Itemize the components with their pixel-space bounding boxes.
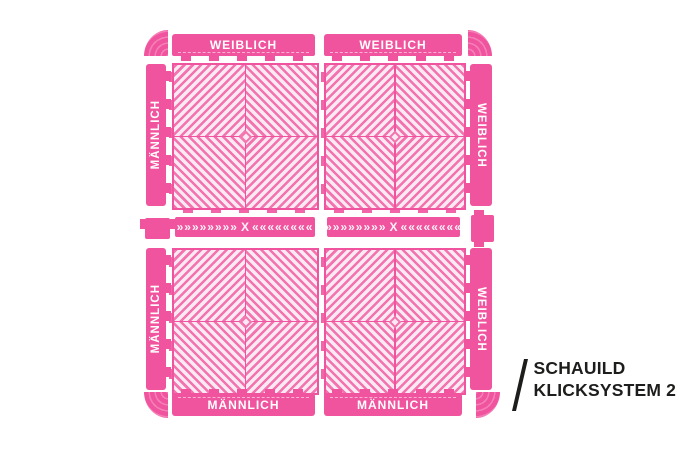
connector-tabs — [474, 210, 490, 215]
connector-tabs — [334, 208, 455, 213]
corner-piece-bottom-left — [144, 392, 168, 418]
transition-strip-right: »»»»»»»» X «««««««« — [327, 217, 460, 237]
floor-tile-3 — [172, 248, 319, 395]
brand-slash-icon — [512, 359, 528, 411]
edge-strip-label: MÄNNLICH — [208, 398, 280, 412]
tile-quadrant — [174, 250, 245, 321]
brand-line2: KLICKSYSTEM 2 — [534, 379, 677, 401]
tile-quadrant — [326, 65, 394, 136]
floor-tile-2 — [324, 63, 466, 210]
tile-quadrant — [246, 137, 317, 208]
connector-tabs — [474, 242, 490, 247]
tile-quadrant — [246, 250, 317, 321]
edge-strip-right-bottom: WEIBLICH — [470, 248, 492, 390]
edge-strip-label: WEIBLICH — [475, 287, 487, 352]
corner-piece-top-left — [144, 30, 168, 56]
tile-quadrant — [326, 250, 394, 321]
connector-tabs — [169, 72, 174, 201]
floor-tile-4 — [324, 248, 466, 395]
edge-strip-top-left: WEIBLICH — [172, 34, 315, 56]
edge-strip-bottom-left: MÄNNLICH — [172, 394, 315, 416]
tile-quadrant — [396, 137, 464, 208]
tile-quadrant — [246, 65, 317, 136]
chevrons-right-pointing: »»»»»»»» — [327, 220, 387, 234]
product-image: WEIBLICH WEIBLICH MÄNNLICH MÄNNLICH WEIB… — [0, 0, 700, 467]
transition-center-x: X — [390, 220, 398, 234]
transition-center-x: X — [241, 220, 249, 234]
floor-tile-1 — [172, 63, 319, 210]
strip-dash-line — [330, 397, 457, 398]
edge-strip-label: WEIBLICH — [475, 103, 487, 168]
joint-connector-left — [145, 218, 170, 239]
edge-strip-left-bottom: MÄNNLICH — [146, 248, 166, 390]
strip-dash-line — [178, 52, 310, 53]
connector-tabs — [183, 208, 309, 213]
tile-quadrant — [326, 322, 394, 393]
edge-strip-left-top: MÄNNLICH — [146, 64, 166, 206]
tile-quadrant — [396, 65, 464, 136]
transition-strip-left: »»»»»»»» X «««««««« — [175, 217, 315, 237]
edge-strip-label: MÄNNLICH — [150, 100, 162, 169]
edge-strip-right-top: WEIBLICH — [470, 64, 492, 206]
connector-tabs — [170, 219, 175, 238]
corner-piece-bottom-right — [476, 392, 500, 418]
brand-line1: SCHAUILD — [534, 357, 677, 379]
connector-tabs — [140, 219, 145, 238]
brand-logo: SCHAUILD KLICKSYSTEM 2 — [512, 357, 676, 411]
tile-quadrant — [246, 322, 317, 393]
joint-connector-right — [471, 215, 494, 242]
edge-strip-label: WEIBLICH — [359, 38, 426, 52]
edge-strip-label: MÄNNLICH — [150, 284, 162, 353]
tile-quadrant — [396, 250, 464, 321]
connector-tabs — [332, 56, 453, 61]
edge-strip-bottom-right: MÄNNLICH — [324, 394, 462, 416]
edge-strip-top-right: WEIBLICH — [324, 34, 462, 56]
chevrons-left-pointing: «««««««« — [401, 220, 460, 234]
edge-strip-label: MÄNNLICH — [357, 398, 429, 412]
connector-tabs — [181, 56, 307, 61]
tile-quadrant — [326, 137, 394, 208]
corner-piece-top-right — [468, 30, 492, 56]
strip-dash-line — [178, 397, 310, 398]
connector-tabs — [321, 72, 326, 201]
tile-quadrant — [174, 322, 245, 393]
tile-quadrant — [174, 65, 245, 136]
connector-tabs — [169, 257, 174, 386]
strip-dash-line — [330, 52, 457, 53]
connector-tabs — [181, 389, 307, 394]
chevrons-right-pointing: »»»»»»»» — [177, 220, 238, 234]
tile-quadrant — [396, 322, 464, 393]
brand-text: SCHAUILD KLICKSYSTEM 2 — [534, 357, 677, 401]
edge-strip-label: WEIBLICH — [210, 38, 277, 52]
tile-quadrant — [174, 137, 245, 208]
chevrons-left-pointing: «««««««« — [252, 220, 313, 234]
connector-tabs — [321, 257, 326, 386]
connector-tabs — [332, 389, 453, 394]
